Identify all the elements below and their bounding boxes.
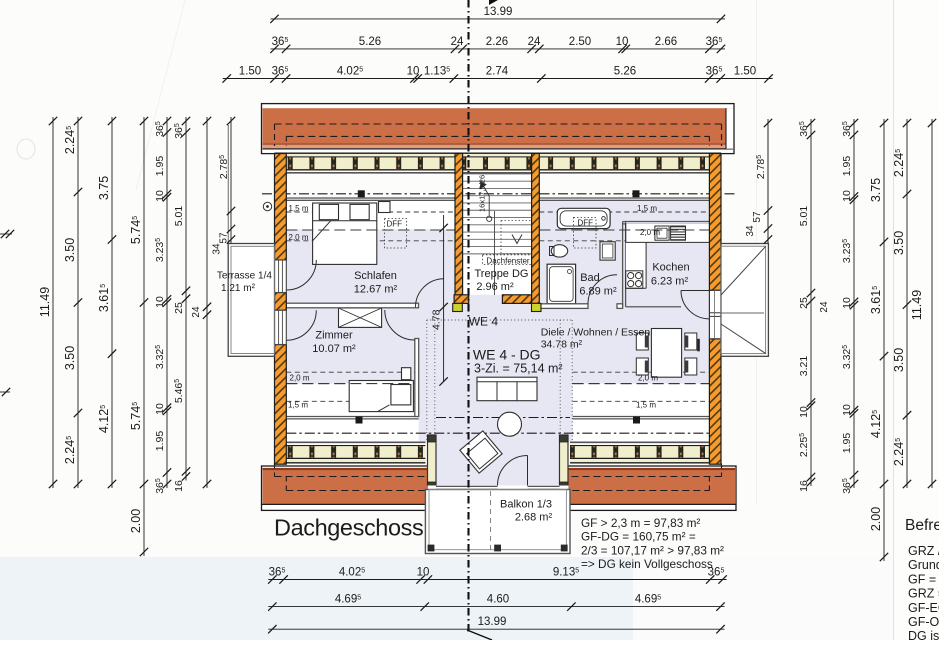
svg-text:5.26: 5.26 <box>359 36 381 48</box>
svg-text:2,0 m: 2,0 m <box>290 373 310 382</box>
svg-text:2.245: 2.245 <box>892 438 906 466</box>
svg-text:3.75: 3.75 <box>97 176 111 200</box>
svg-text:5.01: 5.01 <box>798 206 810 227</box>
svg-text:1,5 m: 1,5 m <box>636 401 656 410</box>
svg-text:Kochen: Kochen <box>652 262 689 274</box>
svg-text:5.745: 5.745 <box>129 402 143 430</box>
svg-text:10: 10 <box>798 406 810 418</box>
svg-text:Grundstück: Grundstück <box>908 558 939 572</box>
svg-text:10.07 m²: 10.07 m² <box>312 343 356 355</box>
svg-text:Zimmer: Zimmer <box>315 330 353 342</box>
svg-text:GF-EG =: GF-EG = <box>908 601 939 615</box>
svg-text:5.01: 5.01 <box>173 206 185 227</box>
svg-text:10: 10 <box>154 403 166 415</box>
svg-text:1.95: 1.95 <box>841 156 853 177</box>
svg-text:Bad: Bad <box>580 272 600 284</box>
svg-text:1.95: 1.95 <box>154 156 166 177</box>
svg-text:3.615: 3.615 <box>869 286 883 314</box>
svg-text:3.50: 3.50 <box>892 231 906 255</box>
svg-text:1,5 m: 1,5 m <box>289 204 309 213</box>
svg-text:1.50: 1.50 <box>239 66 261 78</box>
svg-text:3.75: 3.75 <box>869 178 883 202</box>
svg-text:4.60: 4.60 <box>487 594 509 606</box>
svg-text:25: 25 <box>173 302 185 314</box>
svg-text:2.245: 2.245 <box>63 436 77 464</box>
svg-text:3-Zi. = 75,14 m²: 3-Zi. = 75,14 m² <box>474 362 563 376</box>
svg-text:Befreiung: Befreiung <box>905 517 939 534</box>
svg-text:5.26: 5.26 <box>614 66 636 78</box>
svg-text:2.66: 2.66 <box>655 36 677 48</box>
svg-text:10: 10 <box>616 36 629 48</box>
svg-text:2.50: 2.50 <box>569 36 591 48</box>
svg-text:2.00: 2.00 <box>129 509 143 533</box>
svg-text:24: 24 <box>451 36 464 48</box>
svg-text:Dachfenster: Dachfenster <box>486 257 529 266</box>
svg-text:34: 34 <box>212 243 223 255</box>
svg-text:Treppe DG: Treppe DG <box>474 268 528 280</box>
svg-text:Balkon 1/3: Balkon 1/3 <box>500 499 552 511</box>
svg-text:10: 10 <box>417 567 430 579</box>
svg-text:DFF: DFF <box>578 219 594 228</box>
svg-text:10: 10 <box>841 190 853 202</box>
svg-text:2,0 m: 2,0 m <box>640 228 660 237</box>
svg-text:3.21: 3.21 <box>798 356 810 377</box>
svg-text:24: 24 <box>528 36 541 48</box>
svg-text:10: 10 <box>154 296 166 308</box>
svg-text:13.99: 13.99 <box>484 6 513 18</box>
svg-text:GF > 2,3 m = 97,83 m²: GF > 2,3 m = 97,83 m² <box>581 516 700 530</box>
svg-text:4.125: 4.125 <box>869 410 883 438</box>
svg-text:6.23 m²: 6.23 m² <box>651 276 689 288</box>
svg-text:57: 57 <box>219 232 230 244</box>
svg-text:2/3 = 107,17 m² > 97,83 m²: 2/3 = 107,17 m² > 97,83 m² <box>581 543 724 557</box>
svg-text:25: 25 <box>798 297 810 309</box>
svg-text:2,0 m: 2,0 m <box>638 373 658 382</box>
svg-text:GF = 4: GF = 4 <box>908 572 939 586</box>
svg-text:1.95: 1.95 <box>154 431 166 452</box>
svg-text:16: 16 <box>798 480 810 492</box>
svg-text:10: 10 <box>841 297 853 309</box>
svg-text:2.00: 2.00 <box>869 507 883 531</box>
svg-text:3.615: 3.615 <box>97 284 111 312</box>
svg-text:16x17,9/26: 16x17,9/26 <box>478 175 487 212</box>
svg-text:2.245: 2.245 <box>63 126 77 154</box>
svg-text:DFF: DFF <box>387 220 403 229</box>
svg-text:11.49: 11.49 <box>38 287 52 317</box>
svg-text:1.50: 1.50 <box>734 66 756 78</box>
svg-text:10: 10 <box>841 404 853 416</box>
svg-text:4.78: 4.78 <box>431 309 443 330</box>
svg-text:3.50: 3.50 <box>63 346 77 370</box>
svg-text:2,0 m: 2,0 m <box>289 233 309 242</box>
svg-text:3.50: 3.50 <box>892 348 906 372</box>
svg-text:57: 57 <box>752 211 763 223</box>
svg-text:24: 24 <box>819 301 830 313</box>
svg-text:GRZ / GF: GRZ / GF <box>908 544 939 558</box>
svg-text:1.21 m²: 1.21 m² <box>221 283 256 294</box>
svg-text:Diele / Wohnen / Essen: Diele / Wohnen / Essen <box>541 327 651 339</box>
svg-text:1,5 m: 1,5 m <box>637 204 657 213</box>
svg-text:34: 34 <box>745 225 756 237</box>
svg-text:GF-OG =: GF-OG = <box>908 615 939 629</box>
svg-text:13.99: 13.99 <box>478 616 507 628</box>
svg-text:GF-DG = 160,75 m² =: GF-DG = 160,75 m² = <box>581 530 696 544</box>
svg-text:6.89 m²: 6.89 m² <box>579 286 617 298</box>
svg-text:2.74: 2.74 <box>486 66 509 78</box>
svg-text:10: 10 <box>407 66 420 78</box>
svg-text:16: 16 <box>173 480 185 492</box>
svg-text:DG ist k: DG ist k <box>908 629 939 640</box>
svg-text:34.78 m²: 34.78 m² <box>541 339 583 351</box>
svg-text:WE 4 - DG: WE 4 - DG <box>473 347 541 363</box>
svg-text:2.26: 2.26 <box>486 36 508 48</box>
svg-text:Dachgeschoss: Dachgeschoss <box>274 515 423 541</box>
svg-text:4.125: 4.125 <box>97 405 111 433</box>
svg-text:1.95: 1.95 <box>841 433 853 454</box>
svg-text:GRZ = 0: GRZ = 0 <box>908 587 939 601</box>
svg-text:2.245: 2.245 <box>892 149 906 177</box>
svg-text:5.745: 5.745 <box>129 216 143 244</box>
svg-text:2.96 m²: 2.96 m² <box>476 281 514 293</box>
svg-text:3.50: 3.50 <box>63 238 77 262</box>
svg-text:Terrasse 1/4: Terrasse 1/4 <box>217 271 272 282</box>
svg-text:2.68 m²: 2.68 m² <box>515 512 553 524</box>
svg-text:Schlafen: Schlafen <box>354 270 397 282</box>
svg-text:10: 10 <box>154 190 166 202</box>
svg-text:24: 24 <box>191 306 202 318</box>
svg-text:1,5 m: 1,5 m <box>288 401 308 410</box>
svg-text:12.67 m²: 12.67 m² <box>354 284 398 296</box>
svg-text:=> DG kein Vollgeschoss: => DG kein Vollgeschoss <box>581 557 713 571</box>
svg-text:WE 4: WE 4 <box>469 315 499 329</box>
svg-text:11.49: 11.49 <box>910 290 924 320</box>
